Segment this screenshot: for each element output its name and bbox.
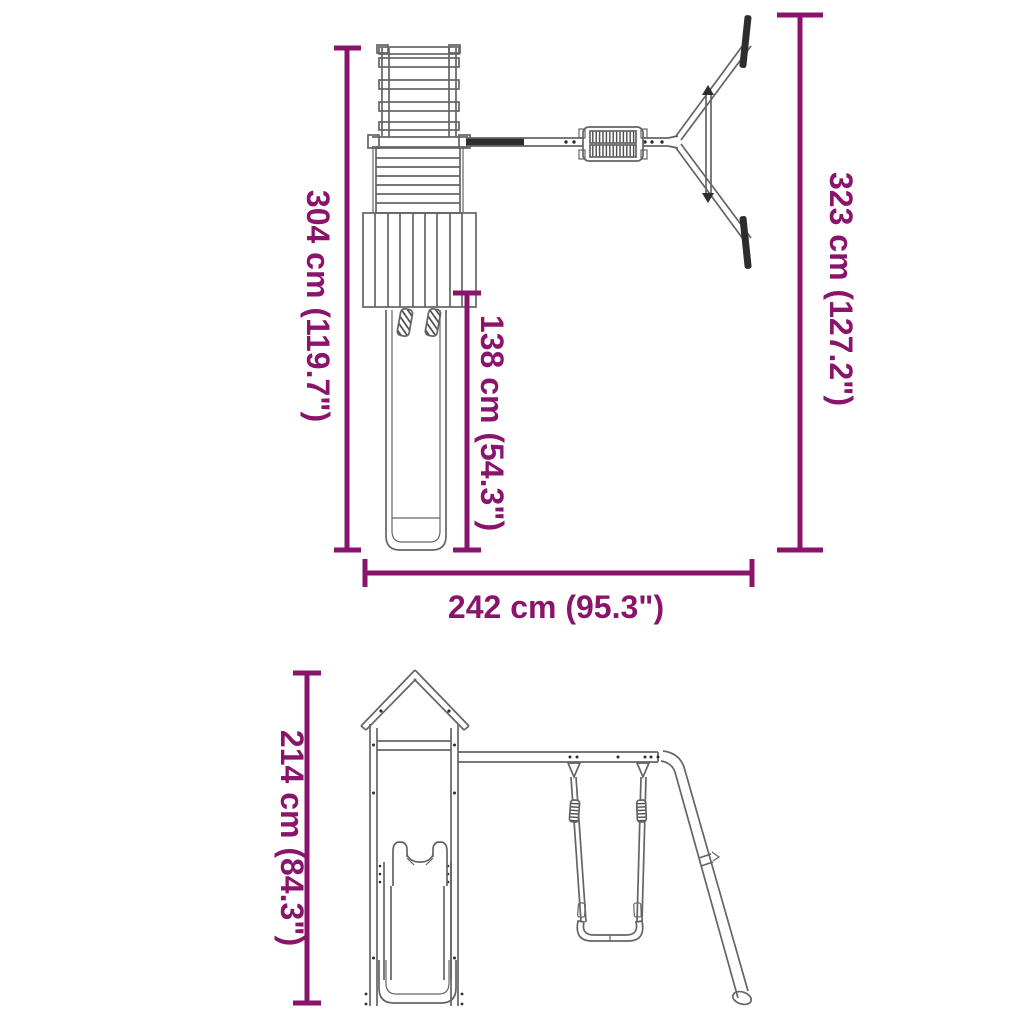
dimension-242-label: 242 cm (95.3") xyxy=(448,589,664,625)
side-swing xyxy=(568,763,649,941)
plan-ladder xyxy=(377,45,460,137)
dimension-242: 242 cm (95.3") xyxy=(365,559,752,625)
plan-slide xyxy=(386,310,446,550)
dimension-138-label: 138 cm (54.3") xyxy=(474,315,510,531)
dimension-323-label: 323 cm (127.2") xyxy=(823,172,859,406)
side-slide-front xyxy=(379,842,456,1003)
dimension-304: 304 cm (119.7") xyxy=(300,48,361,550)
product-dimension-diagram: 304 cm (119.7") 138 cm (54.3") 323 cm (1… xyxy=(0,0,1024,1024)
diagram-canvas: 304 cm (119.7") 138 cm (54.3") 323 cm (1… xyxy=(0,0,1024,1024)
side-swing-frame xyxy=(458,751,753,1007)
side-view-drawing xyxy=(361,670,753,1007)
plan-view-drawing xyxy=(363,15,752,550)
dimension-304-label: 304 cm (119.7") xyxy=(300,190,336,422)
dimension-138: 138 cm (54.3") xyxy=(453,293,510,550)
plan-platform-deck xyxy=(373,148,463,213)
plan-a-frame xyxy=(668,15,752,269)
plan-swing-seat xyxy=(579,127,647,161)
dimension-214-label: 214 cm (84.3") xyxy=(274,730,310,946)
side-roof xyxy=(361,670,469,730)
dimension-214: 214 cm (84.3") xyxy=(274,673,321,1003)
plan-tower-frame xyxy=(368,135,470,148)
plan-slide-springs xyxy=(397,308,442,337)
dimension-323: 323 cm (127.2") xyxy=(777,15,859,550)
